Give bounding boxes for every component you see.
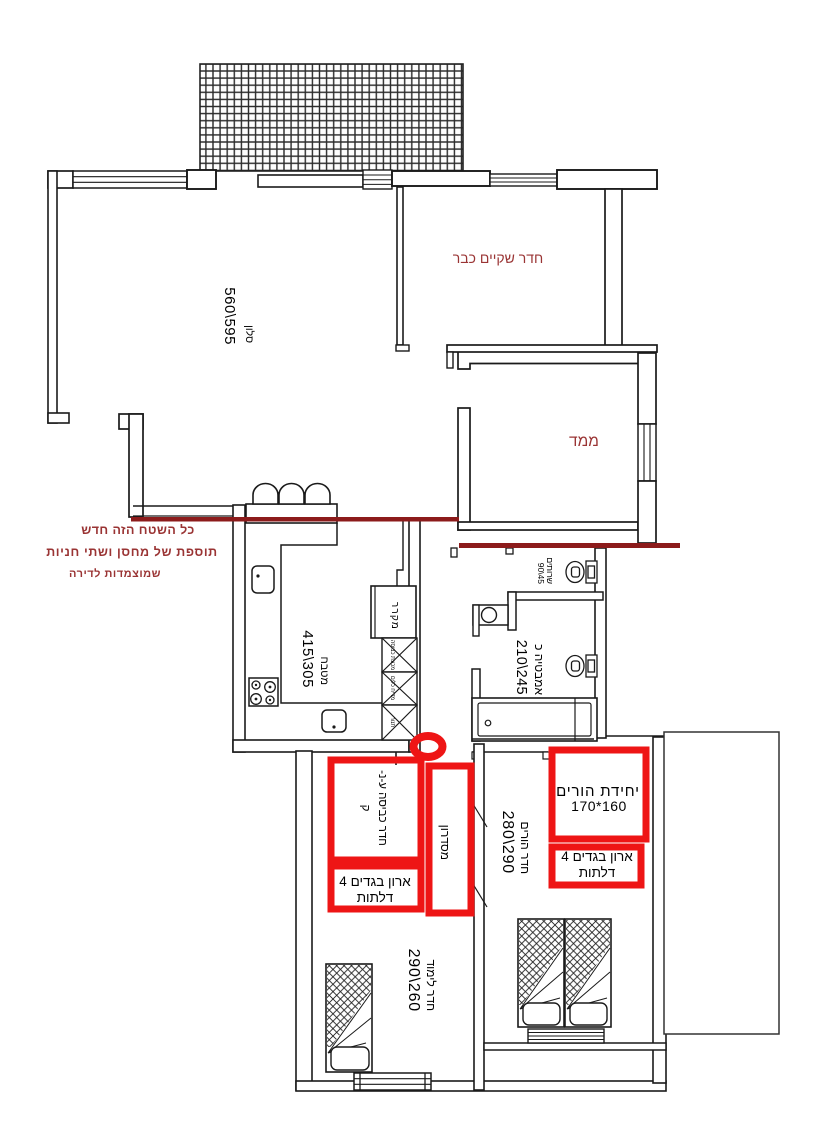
svg-text:מכונת כביסה: מכונת כביסה	[389, 640, 395, 670]
svg-text:חדר כביסה ע-נ-: חדר כביסה ע-נ-	[376, 770, 388, 846]
svg-text:מסדרון: מסדרון	[438, 825, 452, 860]
svg-text:דלתות: דלתות	[579, 865, 616, 880]
svg-text:תוספת של מחסן ושתי חניות: תוספת של מחסן ושתי חניות	[46, 545, 218, 559]
svg-text:חדר לימוד: חדר לימוד	[424, 959, 438, 1011]
svg-text:סלון: סלון	[243, 325, 255, 343]
svg-text:תנור: תנור	[389, 717, 395, 728]
svg-text:אמבטיה כ: אמבטיה כ	[532, 644, 546, 695]
svg-text:90\45: 90\45	[536, 563, 546, 585]
svg-text:חדר שקיים כבר: חדר שקיים כבר	[453, 250, 543, 266]
svg-text:חדר הורים: חדר הורים	[518, 822, 532, 874]
svg-text:210\245: 210\245	[513, 640, 529, 695]
svg-text:כל השטח הזה חדש: כל השטח הזה חדש	[81, 523, 194, 537]
svg-text:170*160: 170*160	[571, 798, 627, 814]
svg-text:שמוצמדות לדירה: שמוצמדות לדירה	[69, 567, 161, 580]
svg-text:ק: ק	[359, 805, 371, 812]
svg-text:ממד: ממד	[569, 433, 599, 450]
svg-text:415\305: 415\305	[299, 630, 316, 688]
svg-text:מדיח כלים: מדיח כלים	[389, 676, 396, 700]
svg-text:דלתות: דלתות	[357, 890, 394, 905]
svg-text:ארון בגדים 4: ארון בגדים 4	[561, 849, 633, 864]
svg-text:ארון בגדים 4: ארון בגדים 4	[339, 874, 411, 889]
svg-text:290\260: 290\260	[405, 949, 422, 1012]
svg-text:280\290: 280\290	[499, 811, 516, 874]
svg-text:560\595: 560\595	[221, 287, 238, 345]
svg-text:מטבח: מטבח	[318, 656, 330, 685]
svg-text:מקרר: מקרר	[389, 602, 400, 630]
